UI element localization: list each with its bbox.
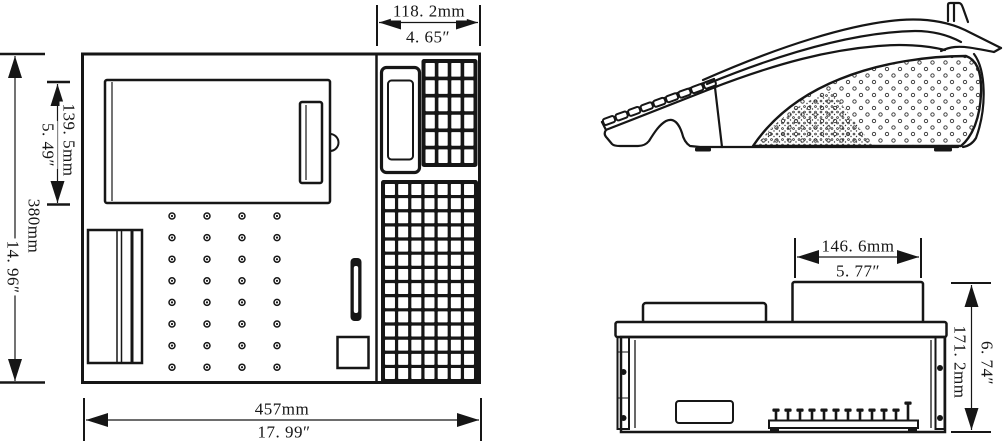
dim-label-total-width-inch: 17. 99″ <box>255 423 312 442</box>
side-view-keys <box>602 79 716 126</box>
terminal-bar-foot <box>908 428 917 432</box>
foot <box>695 148 711 152</box>
dim-label-printer-height-inch: 5. 49″ <box>39 121 58 169</box>
foot <box>934 148 952 152</box>
dim-label-rear-height-mm: 171. 2mm <box>951 324 970 401</box>
bracket-screw <box>937 365 943 371</box>
dim-label-total-width-mm: 457mm <box>253 400 311 419</box>
terminal-pins <box>772 402 911 422</box>
terminal-bar <box>769 421 918 429</box>
rear-lid-strip <box>616 322 947 337</box>
dim-label-rear-block-width-inch: 5. 77″ <box>834 262 882 281</box>
rear-port <box>676 401 733 423</box>
dim-label-rear-block-width-mm: 146. 6mm <box>820 237 897 256</box>
bracket-screw <box>621 369 627 375</box>
rear-top-block-right <box>793 282 924 323</box>
front-view <box>83 54 480 383</box>
main-keypad-grid <box>382 181 478 383</box>
technical-drawing-canvas: 118. 2mm 4. 65″ 139. 5mm 5. 49″ 380mm 14… <box>0 0 1007 442</box>
terminal-bar-foot <box>770 428 779 432</box>
dim-label-printer-height-mm: 139. 5mm <box>60 102 79 179</box>
rear-top-block-left <box>643 303 766 323</box>
body-front-slant <box>714 79 722 147</box>
shell-beak-underside <box>941 47 1001 52</box>
dim-label-total-height-mm: 380mm <box>25 197 44 255</box>
dim-label-total-height-inch: 14. 96″ <box>4 238 23 295</box>
bracket-screw <box>621 415 627 421</box>
top-keypad-grid <box>422 60 477 167</box>
dim-label-keypad-width-inch: 4. 65″ <box>404 28 452 47</box>
dim-label-rear-height-inch: 6. 74″ <box>978 339 997 387</box>
key-lock-slit <box>354 266 358 313</box>
dim-label-keypad-width-mm: 118. 2mm <box>391 2 467 21</box>
drawing-linework <box>0 0 1007 442</box>
bracket-screw <box>937 415 943 421</box>
rear-view <box>616 282 947 432</box>
side-view <box>602 3 1001 152</box>
